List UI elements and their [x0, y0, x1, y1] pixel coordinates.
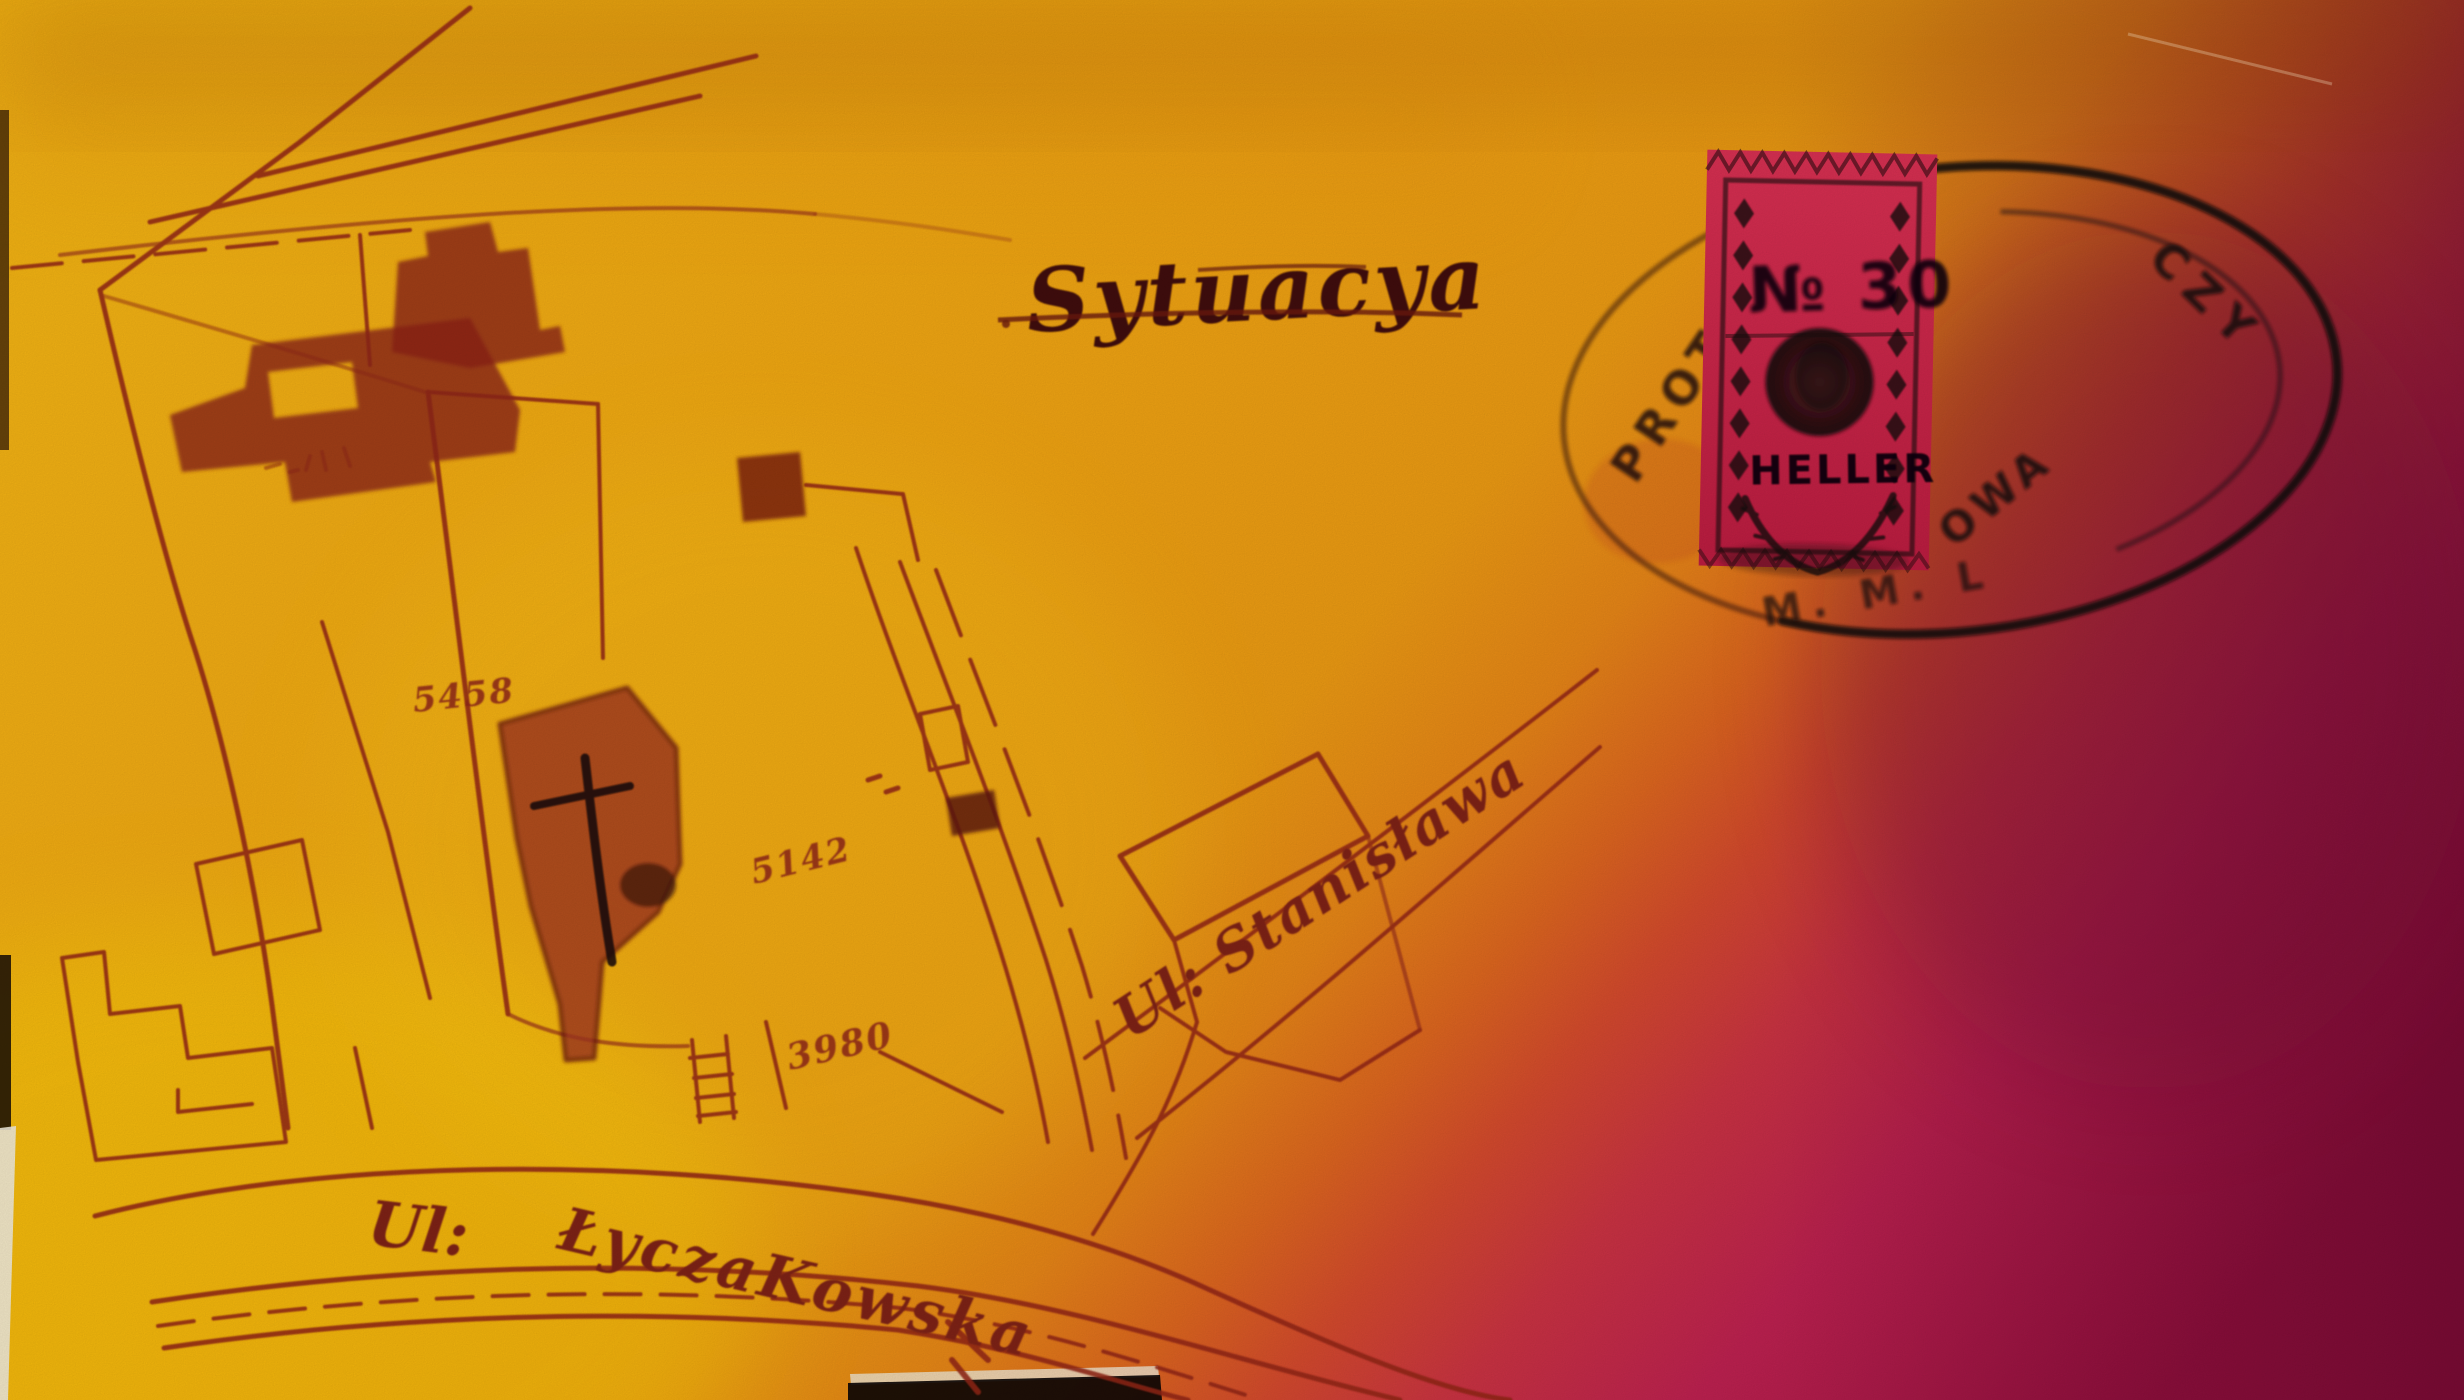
scanned-map-photo: 5458 5142 3980 Ul: Stanisława Ul: ŁyczaK… — [0, 0, 2464, 1400]
paper-grain — [0, 0, 2464, 1400]
map-canvas: 5458 5142 3980 Ul: Stanisława Ul: ŁyczaK… — [0, 0, 2464, 1400]
